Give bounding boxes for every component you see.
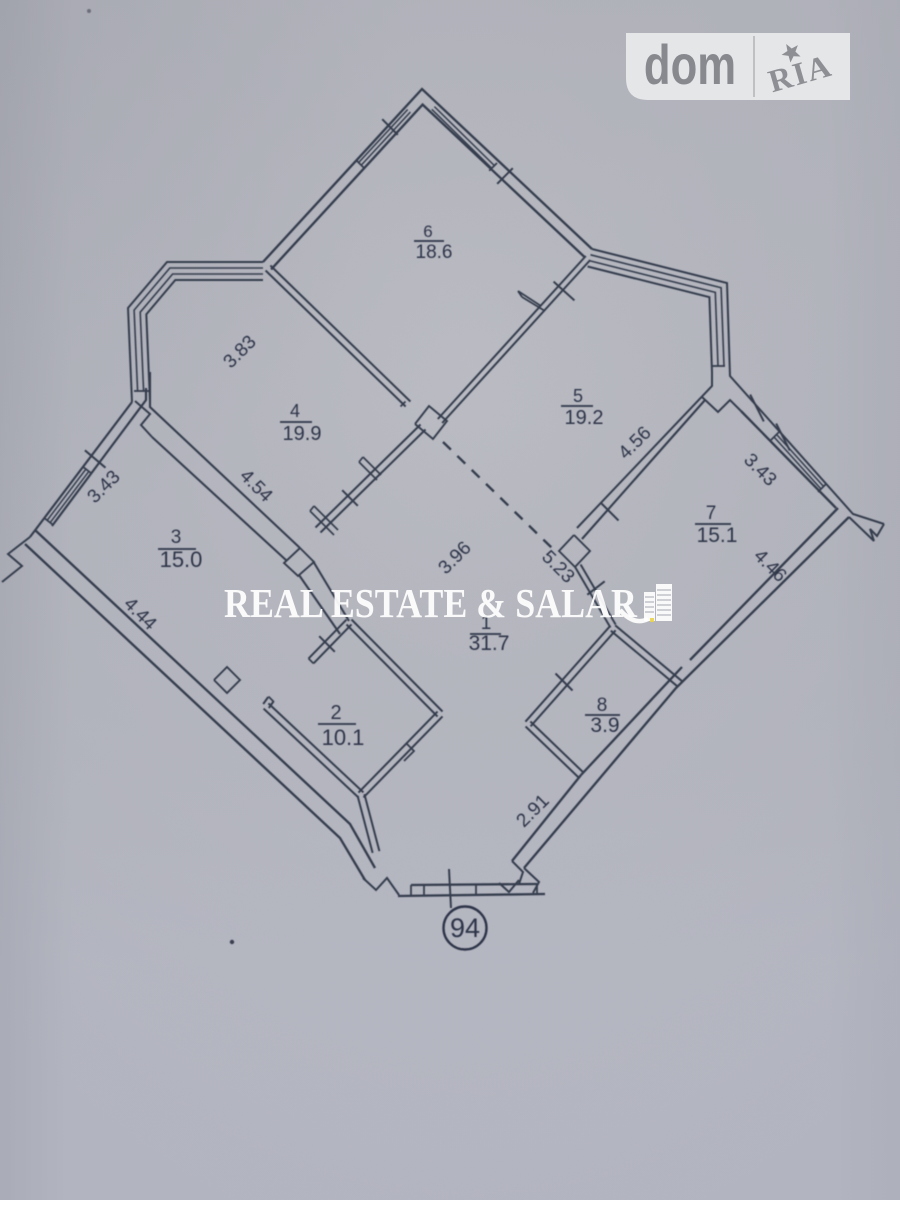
svg-text:8: 8 xyxy=(597,695,608,716)
svg-text:18.6: 18.6 xyxy=(416,242,453,263)
svg-text:3: 3 xyxy=(171,527,182,548)
svg-text:15.1: 15.1 xyxy=(697,524,738,547)
svg-text:dom: dom xyxy=(644,34,736,96)
svg-text:7: 7 xyxy=(706,503,717,524)
svg-text:19.9: 19.9 xyxy=(283,423,322,445)
svg-text:19.2: 19.2 xyxy=(565,407,604,429)
svg-text:15.0: 15.0 xyxy=(160,547,203,572)
svg-text:3.9: 3.9 xyxy=(590,714,619,737)
svg-text:5: 5 xyxy=(573,386,583,406)
svg-text:94: 94 xyxy=(450,913,480,943)
svg-text:4: 4 xyxy=(290,401,300,421)
svg-text:2: 2 xyxy=(330,702,341,724)
svg-text:6: 6 xyxy=(423,222,432,241)
svg-text:31.7: 31.7 xyxy=(469,632,510,655)
svg-text:10.1: 10.1 xyxy=(322,725,365,750)
svg-text:REAL ESTATE & SALAR: REAL ESTATE & SALAR xyxy=(224,580,637,626)
